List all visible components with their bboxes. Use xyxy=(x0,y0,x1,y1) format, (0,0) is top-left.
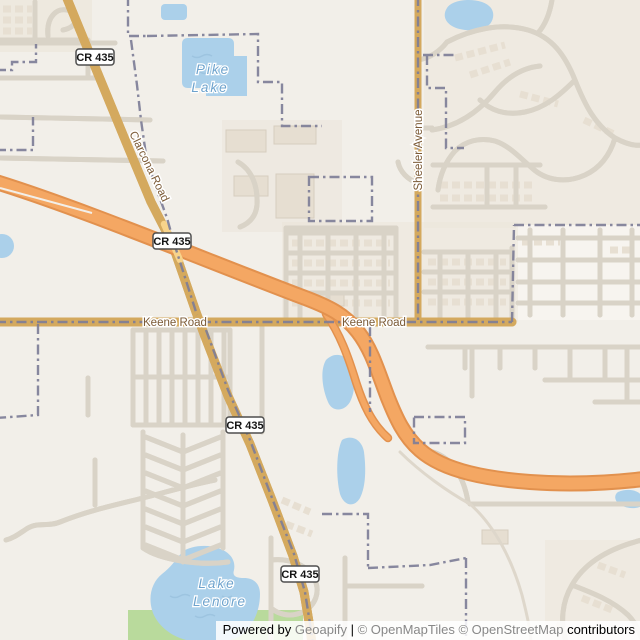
water-label-lenore-line2: Lenore xyxy=(193,594,247,609)
small-pond xyxy=(161,4,187,20)
route-shield-cr435-3: CR 435 xyxy=(226,417,264,433)
route-shield-cr435-4: CR 435 xyxy=(281,566,319,582)
attribution-bar: Powered by Geoapify | © OpenMapTiles © O… xyxy=(216,621,640,640)
road-label-keene-west: Keene Road xyxy=(143,317,207,329)
water-label-lenore-line1: Lake xyxy=(198,576,235,591)
topright-pond xyxy=(445,0,494,30)
map-canvas[interactable]: Keene Road Keene Road Clarcona Road Shee… xyxy=(0,0,640,640)
attribution-powered-by: Powered by xyxy=(223,622,292,637)
geoapify-link[interactable]: Geoapify xyxy=(295,622,347,637)
water-label-pike-line2: Lake xyxy=(191,80,228,95)
building-industrial xyxy=(274,126,316,144)
road-label-keene-east: Keene Road xyxy=(342,317,406,329)
building-industrial xyxy=(226,130,266,152)
openmaptiles-link[interactable]: © OpenMapTiles xyxy=(358,622,455,637)
attribution-separator: | xyxy=(351,622,354,637)
water-label-pike-line1: Pike xyxy=(196,62,230,77)
shield-label: CR 435 xyxy=(76,52,113,64)
route-shield-cr435-2: CR 435 xyxy=(153,233,191,249)
route-shield-cr435-1: CR 435 xyxy=(76,49,114,65)
map-viewport: Keene Road Keene Road Clarcona Road Shee… xyxy=(0,0,640,640)
shield-label: CR 435 xyxy=(153,236,190,248)
attribution-contributors: contributors xyxy=(567,622,635,637)
interchange-pond-south xyxy=(337,438,365,505)
road-label-sheeler: Sheeler Avenue xyxy=(413,110,425,191)
shield-label: CR 435 xyxy=(281,569,318,581)
openstreetmap-link[interactable]: © OpenStreetMap xyxy=(458,622,563,637)
shield-label: CR 435 xyxy=(226,420,263,432)
landuse-residential-topright xyxy=(424,0,640,228)
